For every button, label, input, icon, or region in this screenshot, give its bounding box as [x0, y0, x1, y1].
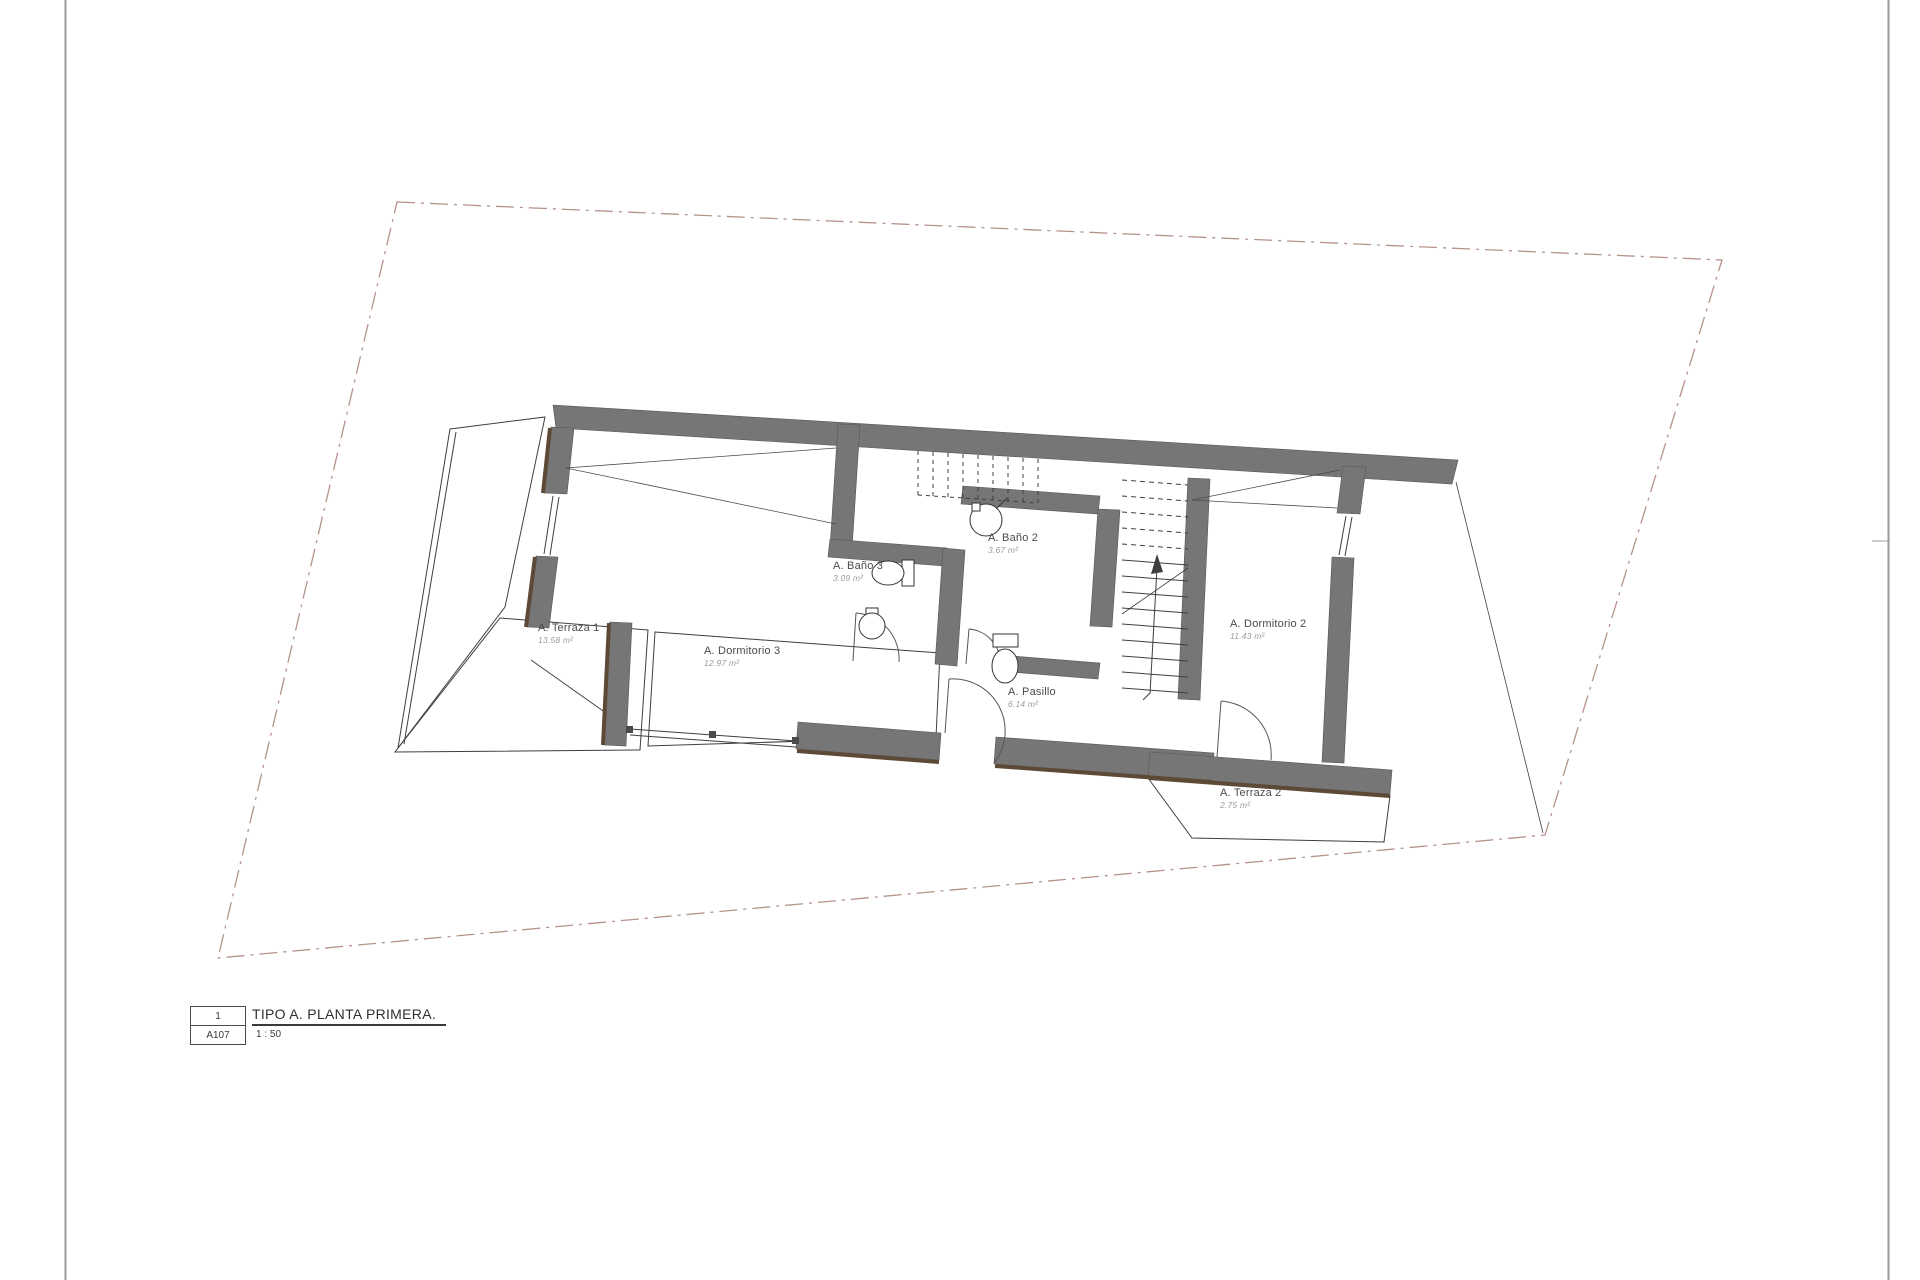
- room-label-bano2: A. Baño 2 3.67 m²: [988, 532, 1038, 556]
- room-area: 11.43 m²: [1230, 630, 1306, 642]
- room-label-dormitorio2: A. Dormitorio 2 11.43 m²: [1230, 618, 1306, 642]
- room-area: 13.58 m²: [538, 634, 600, 646]
- window-mullion: [792, 737, 799, 744]
- stair-direction-arrow-shaft: [1150, 568, 1157, 694]
- floor-plan-drawing: [0, 0, 1920, 1280]
- stair-direction-arrow-head: [1151, 554, 1163, 574]
- room-name: A. Baño 3: [833, 560, 883, 572]
- room-name: A. Terraza 1: [538, 622, 600, 634]
- wall-stair-left: [1090, 509, 1120, 627]
- drawing-sheet: A. Terraza 1 13.58 m² A. Dormitorio 3 12…: [0, 0, 1920, 1280]
- title-block-text: TIPO A. PLANTA PRIMERA. 1 : 50: [252, 1006, 446, 1040]
- door-dormitorio2: [1217, 701, 1271, 760]
- dorm2-fan-line: [1192, 470, 1340, 500]
- sheet-number: 1: [190, 1006, 246, 1026]
- room-name: A. Terraza 2: [1220, 787, 1282, 799]
- dorm3-fan-line: [566, 448, 836, 468]
- room-area: 3.09 m²: [833, 572, 883, 584]
- room-label-terraza1: A. Terraza 1 13.58 m²: [538, 622, 600, 646]
- room-area: 2.75 m²: [1220, 799, 1282, 811]
- page-borders: [66, 0, 1891, 1280]
- plot-mid-outline: [648, 632, 940, 746]
- wall-stair-right: [1178, 478, 1210, 700]
- right-site-edge: [1456, 482, 1543, 833]
- drawing-scale: 1 : 50: [252, 1029, 446, 1040]
- stair-arrow-tail: [1143, 693, 1150, 700]
- window-mullion: [709, 731, 716, 738]
- room-area: 6.14 m²: [1008, 698, 1056, 710]
- chamfer-line: [531, 660, 606, 713]
- wall-top: [553, 405, 1458, 484]
- site-boundary: [218, 202, 1722, 958]
- window-right-1: [1339, 516, 1346, 555]
- room-label-terraza2: A. Terraza 2 2.75 m²: [1220, 787, 1282, 811]
- drawing-title: TIPO A. PLANTA PRIMERA.: [252, 1006, 446, 1026]
- room-label-pasillo: A. Pasillo 6.14 m²: [1008, 686, 1056, 710]
- dorm3-fan-line: [566, 468, 836, 524]
- title-block-boxes: 1 A107: [190, 1006, 246, 1045]
- window-mullion: [626, 726, 633, 733]
- walls: [527, 405, 1458, 794]
- stair-treads-solid: [1122, 560, 1188, 693]
- window-right-2: [1345, 517, 1352, 556]
- room-area: 12.97 m²: [704, 657, 780, 669]
- dorm2-fan-line: [1192, 500, 1337, 508]
- room-name: A. Pasillo: [1008, 686, 1056, 698]
- room-area: 3.67 m²: [988, 544, 1038, 556]
- room-name: A. Dormitorio 3: [704, 645, 780, 657]
- room-label-dormitorio3: A. Dormitorio 3 12.97 m²: [704, 645, 780, 669]
- room-name: A. Baño 2: [988, 532, 1038, 544]
- stair-treads-dashed: [1122, 480, 1188, 549]
- sheet-code: A107: [190, 1026, 246, 1045]
- room-name: A. Dormitorio 2: [1230, 618, 1306, 630]
- wall-right-low: [1322, 557, 1354, 763]
- terraza1-inner-line: [404, 432, 456, 744]
- title-block: 1 A107 TIPO A. PLANTA PRIMERA. 1 : 50: [190, 1006, 446, 1045]
- toilet-bano2: [992, 634, 1018, 683]
- basin-bano3: [859, 608, 885, 639]
- shower-bano2: [970, 498, 1007, 536]
- room-label-bano3: A. Baño 3 3.09 m²: [833, 560, 883, 584]
- terraza1-outline: [398, 417, 545, 748]
